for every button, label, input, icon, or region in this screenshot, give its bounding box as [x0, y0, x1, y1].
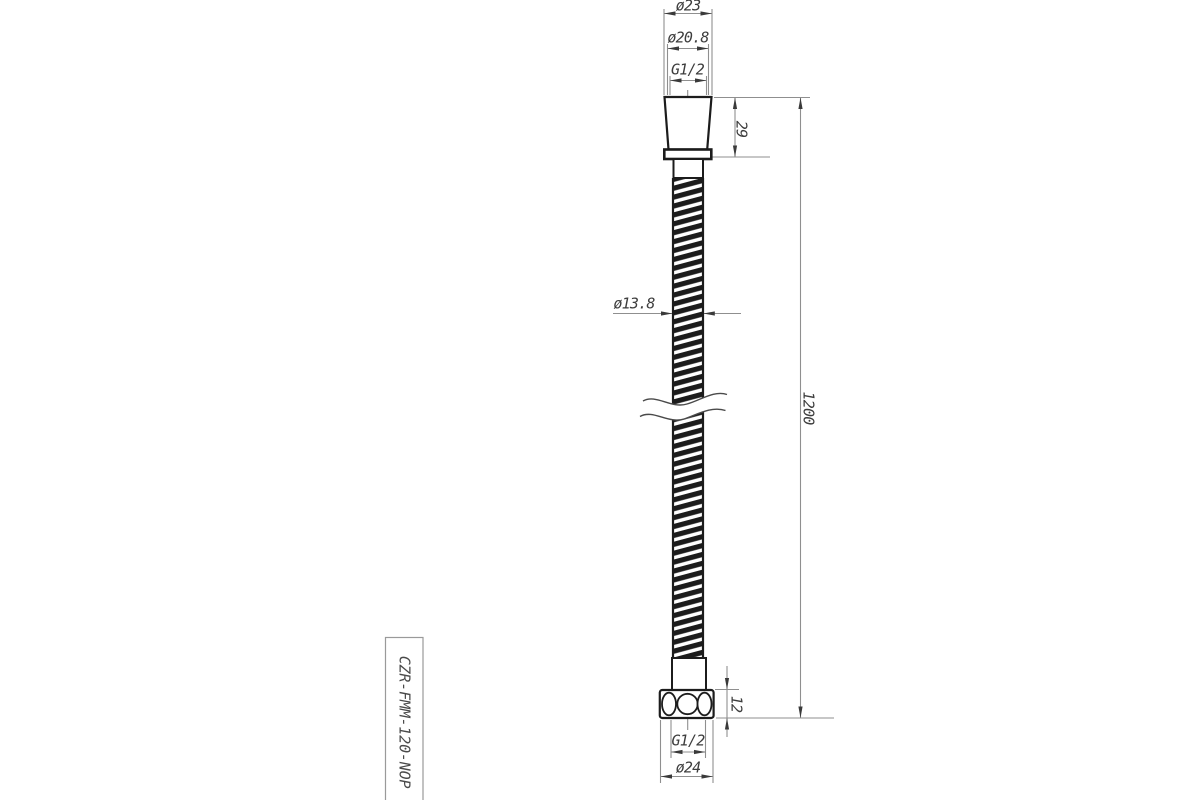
dim-connector-height-label: 29	[734, 121, 749, 137]
bottom-connector-outline	[660, 658, 714, 718]
dim-top-outer-diameter-label: ø23	[676, 0, 701, 14]
dim-total-length-label: 1200	[801, 392, 816, 425]
part-number-label: CZR-FMM-120-NOP	[397, 656, 412, 788]
dim-hose-diameter-label: ø13.8	[613, 297, 654, 312]
hose-drawing	[0, 0, 1200, 800]
top-connector-outline	[664, 97, 711, 178]
drawing-sheet: ø23 ø20.8 G1/2 29 ø13.8 1200 12 G1/2 ø24…	[0, 0, 1200, 800]
dim-nut-height-label: 12	[728, 695, 743, 711]
dim-top-thread-label: G1/2	[671, 63, 704, 78]
dim-bottom-nut-diameter-label: ø24	[676, 761, 701, 776]
dim-top-inner-diameter-label: ø20.8	[667, 31, 708, 46]
dim-bottom-thread-label: G1/2	[672, 733, 705, 748]
